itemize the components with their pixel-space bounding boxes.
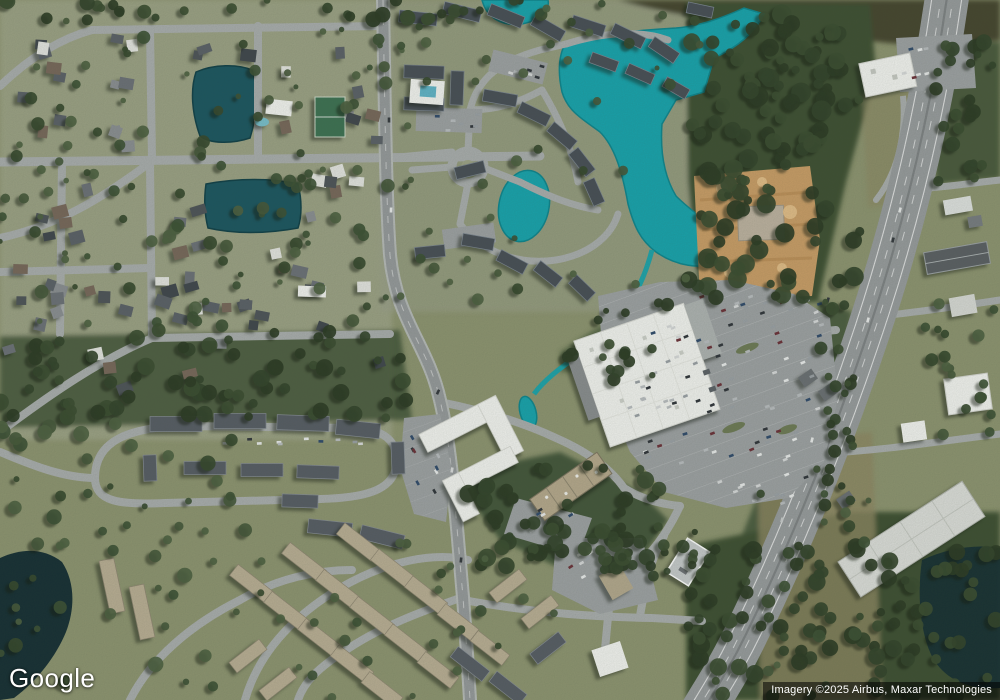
grain-overlay — [0, 0, 1000, 700]
satellite-imagery[interactable] — [0, 0, 1000, 700]
attribution-bar: Imagery ©2025 Airbus, Maxar Technologies — [763, 682, 1000, 700]
google-logo[interactable]: Google — [9, 665, 95, 691]
map-viewport: Google Imagery ©2025 Airbus, Maxar Techn… — [0, 0, 1000, 700]
attribution-text: Imagery ©2025 Airbus, Maxar Technologies — [771, 684, 992, 696]
